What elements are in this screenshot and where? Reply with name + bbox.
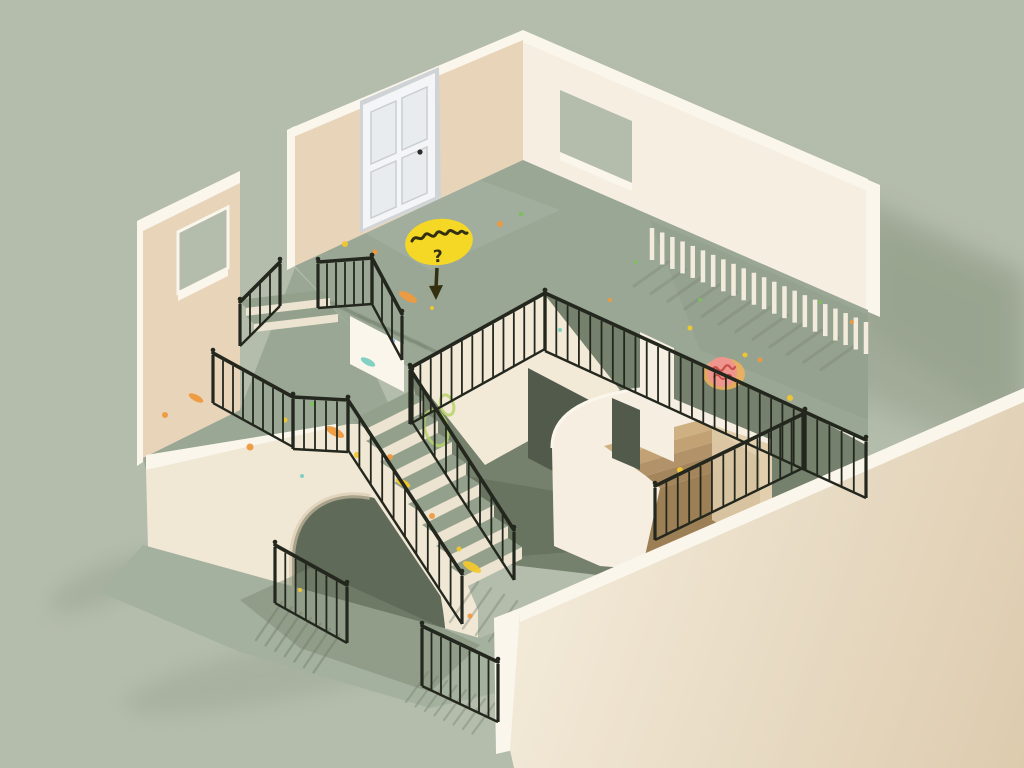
right-wall-end-cap — [866, 179, 880, 317]
door-panel — [402, 87, 427, 150]
confetti-dot — [247, 444, 254, 451]
confetti-dot — [497, 221, 503, 227]
confetti-dot — [310, 402, 315, 407]
question-mark: ? — [432, 247, 443, 268]
confetti-dot — [519, 212, 524, 217]
confetti-dot — [162, 412, 168, 418]
door-panel — [402, 147, 427, 204]
scene-svg: ? — [0, 0, 1024, 768]
isometric-house-illustration: ? — [0, 0, 1024, 768]
confetti-dot — [430, 306, 434, 310]
confetti-dot — [608, 298, 612, 302]
confetti-dot — [743, 353, 748, 358]
nook-dark-slit — [612, 398, 640, 470]
arrow-shaft — [436, 268, 437, 288]
confetti-dot — [688, 326, 693, 331]
confetti-dot — [698, 298, 702, 302]
confetti-dot — [758, 358, 763, 363]
confetti-dot — [468, 614, 473, 619]
confetti-dot — [457, 547, 462, 552]
door-knob — [417, 149, 422, 154]
confetti-dot — [787, 395, 793, 401]
left-wall-edge — [137, 218, 143, 466]
door-panel — [371, 161, 396, 218]
confetti-dot — [298, 588, 302, 592]
confetti-dot — [818, 300, 822, 304]
confetti-dot — [429, 513, 435, 519]
confetti-dot — [300, 474, 304, 478]
confetti-dot — [342, 241, 348, 247]
sticker-disc — [707, 357, 737, 387]
back-wall-left-edge — [287, 126, 295, 270]
confetti-dot — [558, 328, 562, 332]
confetti-dot — [850, 320, 854, 324]
door-panel — [371, 101, 396, 164]
confetti-dot — [634, 260, 638, 264]
